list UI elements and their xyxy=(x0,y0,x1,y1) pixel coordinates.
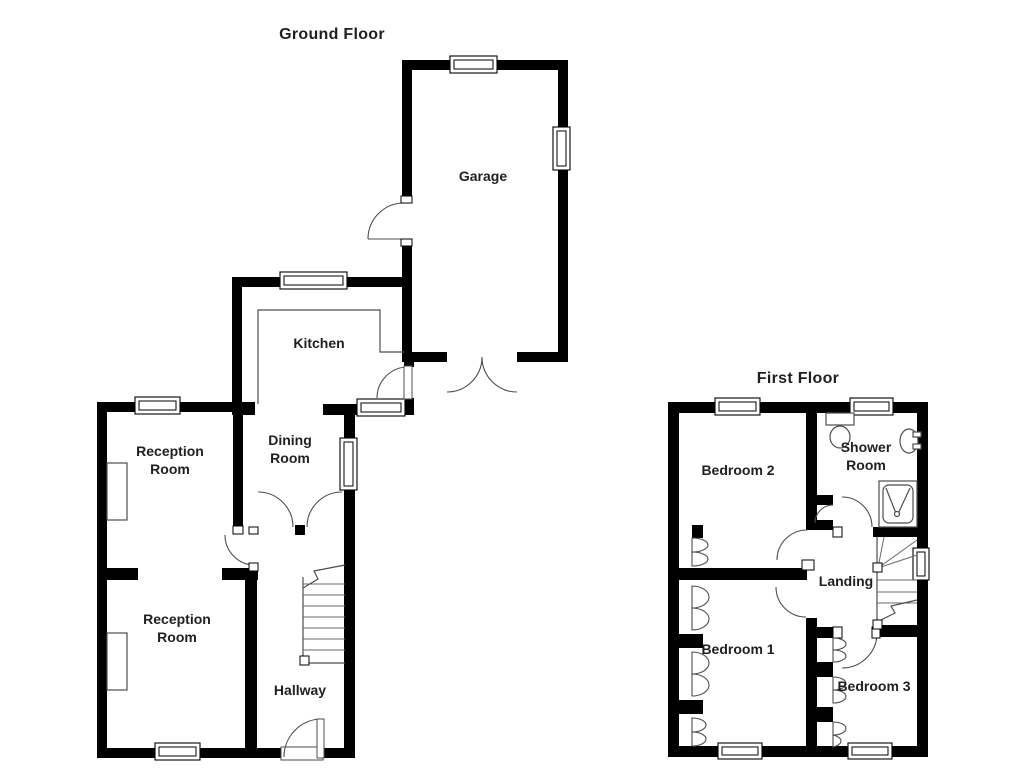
bedroom2-window xyxy=(715,398,760,415)
ground-floor-title: Ground Floor xyxy=(279,26,385,43)
room-label-landing: Landing xyxy=(819,573,873,589)
dining-window xyxy=(340,438,357,490)
garage-window-top xyxy=(450,56,497,73)
room-label-bedroom1: Bedroom 1 xyxy=(701,641,774,657)
room-label-garage: Garage xyxy=(459,168,507,184)
bedroom1-window xyxy=(718,743,762,759)
room-label-reception1-1: Reception xyxy=(136,443,204,459)
reception-hall-door xyxy=(225,526,258,571)
bedroom1-wardrobe-icon xyxy=(692,586,709,746)
room-label-shower-2: Room xyxy=(846,457,886,473)
kitchen-unit-boundary xyxy=(258,310,404,404)
room-label-hallway: Hallway xyxy=(274,682,326,698)
dining-door-right xyxy=(307,492,342,527)
reception2-chimney-recess xyxy=(107,633,127,690)
ground-floor-stairs xyxy=(300,565,345,665)
kitchen-window xyxy=(280,272,347,289)
kitchen-rear-window xyxy=(357,399,405,416)
sink-icon xyxy=(900,429,921,453)
first-floor-title: First Floor xyxy=(757,370,839,387)
garage-side-door xyxy=(368,196,412,246)
ground-floor-plan: Ground Floor xyxy=(97,26,570,760)
kitchen-back-door xyxy=(377,366,412,399)
room-label-reception1-2: Room xyxy=(150,461,190,477)
bedroom3-window xyxy=(848,743,892,759)
room-label-bedroom3: Bedroom 3 xyxy=(837,678,910,694)
first-floor-plan: First Floor xyxy=(668,370,929,759)
dining-door-left xyxy=(258,492,293,527)
reception2-window xyxy=(155,743,200,760)
room-label-bedroom2: Bedroom 2 xyxy=(701,462,774,478)
room-label-reception2-1: Reception xyxy=(143,611,211,627)
room-label-shower-1: Shower xyxy=(841,439,892,455)
shower-icon xyxy=(879,481,917,527)
bedroom1-door xyxy=(776,587,806,617)
stairwell-window xyxy=(913,548,929,580)
first-floor-stairs xyxy=(873,537,917,629)
front-door xyxy=(281,719,324,760)
room-label-dining-2: Room xyxy=(270,450,310,466)
floorplan-image: Ground Floor xyxy=(0,0,1024,768)
reception1-window xyxy=(135,397,180,414)
bedroom2-wardrobe-icon xyxy=(692,538,708,566)
shower-room-window xyxy=(850,398,893,415)
reception1-chimney-recess xyxy=(107,463,127,520)
shower-room-door xyxy=(833,497,872,537)
room-label-dining-1: Dining xyxy=(268,432,312,448)
garage-window-right xyxy=(553,127,570,170)
room-label-kitchen: Kitchen xyxy=(293,335,344,351)
bedroom2-door xyxy=(777,530,814,570)
room-label-reception2-2: Room xyxy=(157,629,197,645)
garage-double-door xyxy=(447,357,517,392)
